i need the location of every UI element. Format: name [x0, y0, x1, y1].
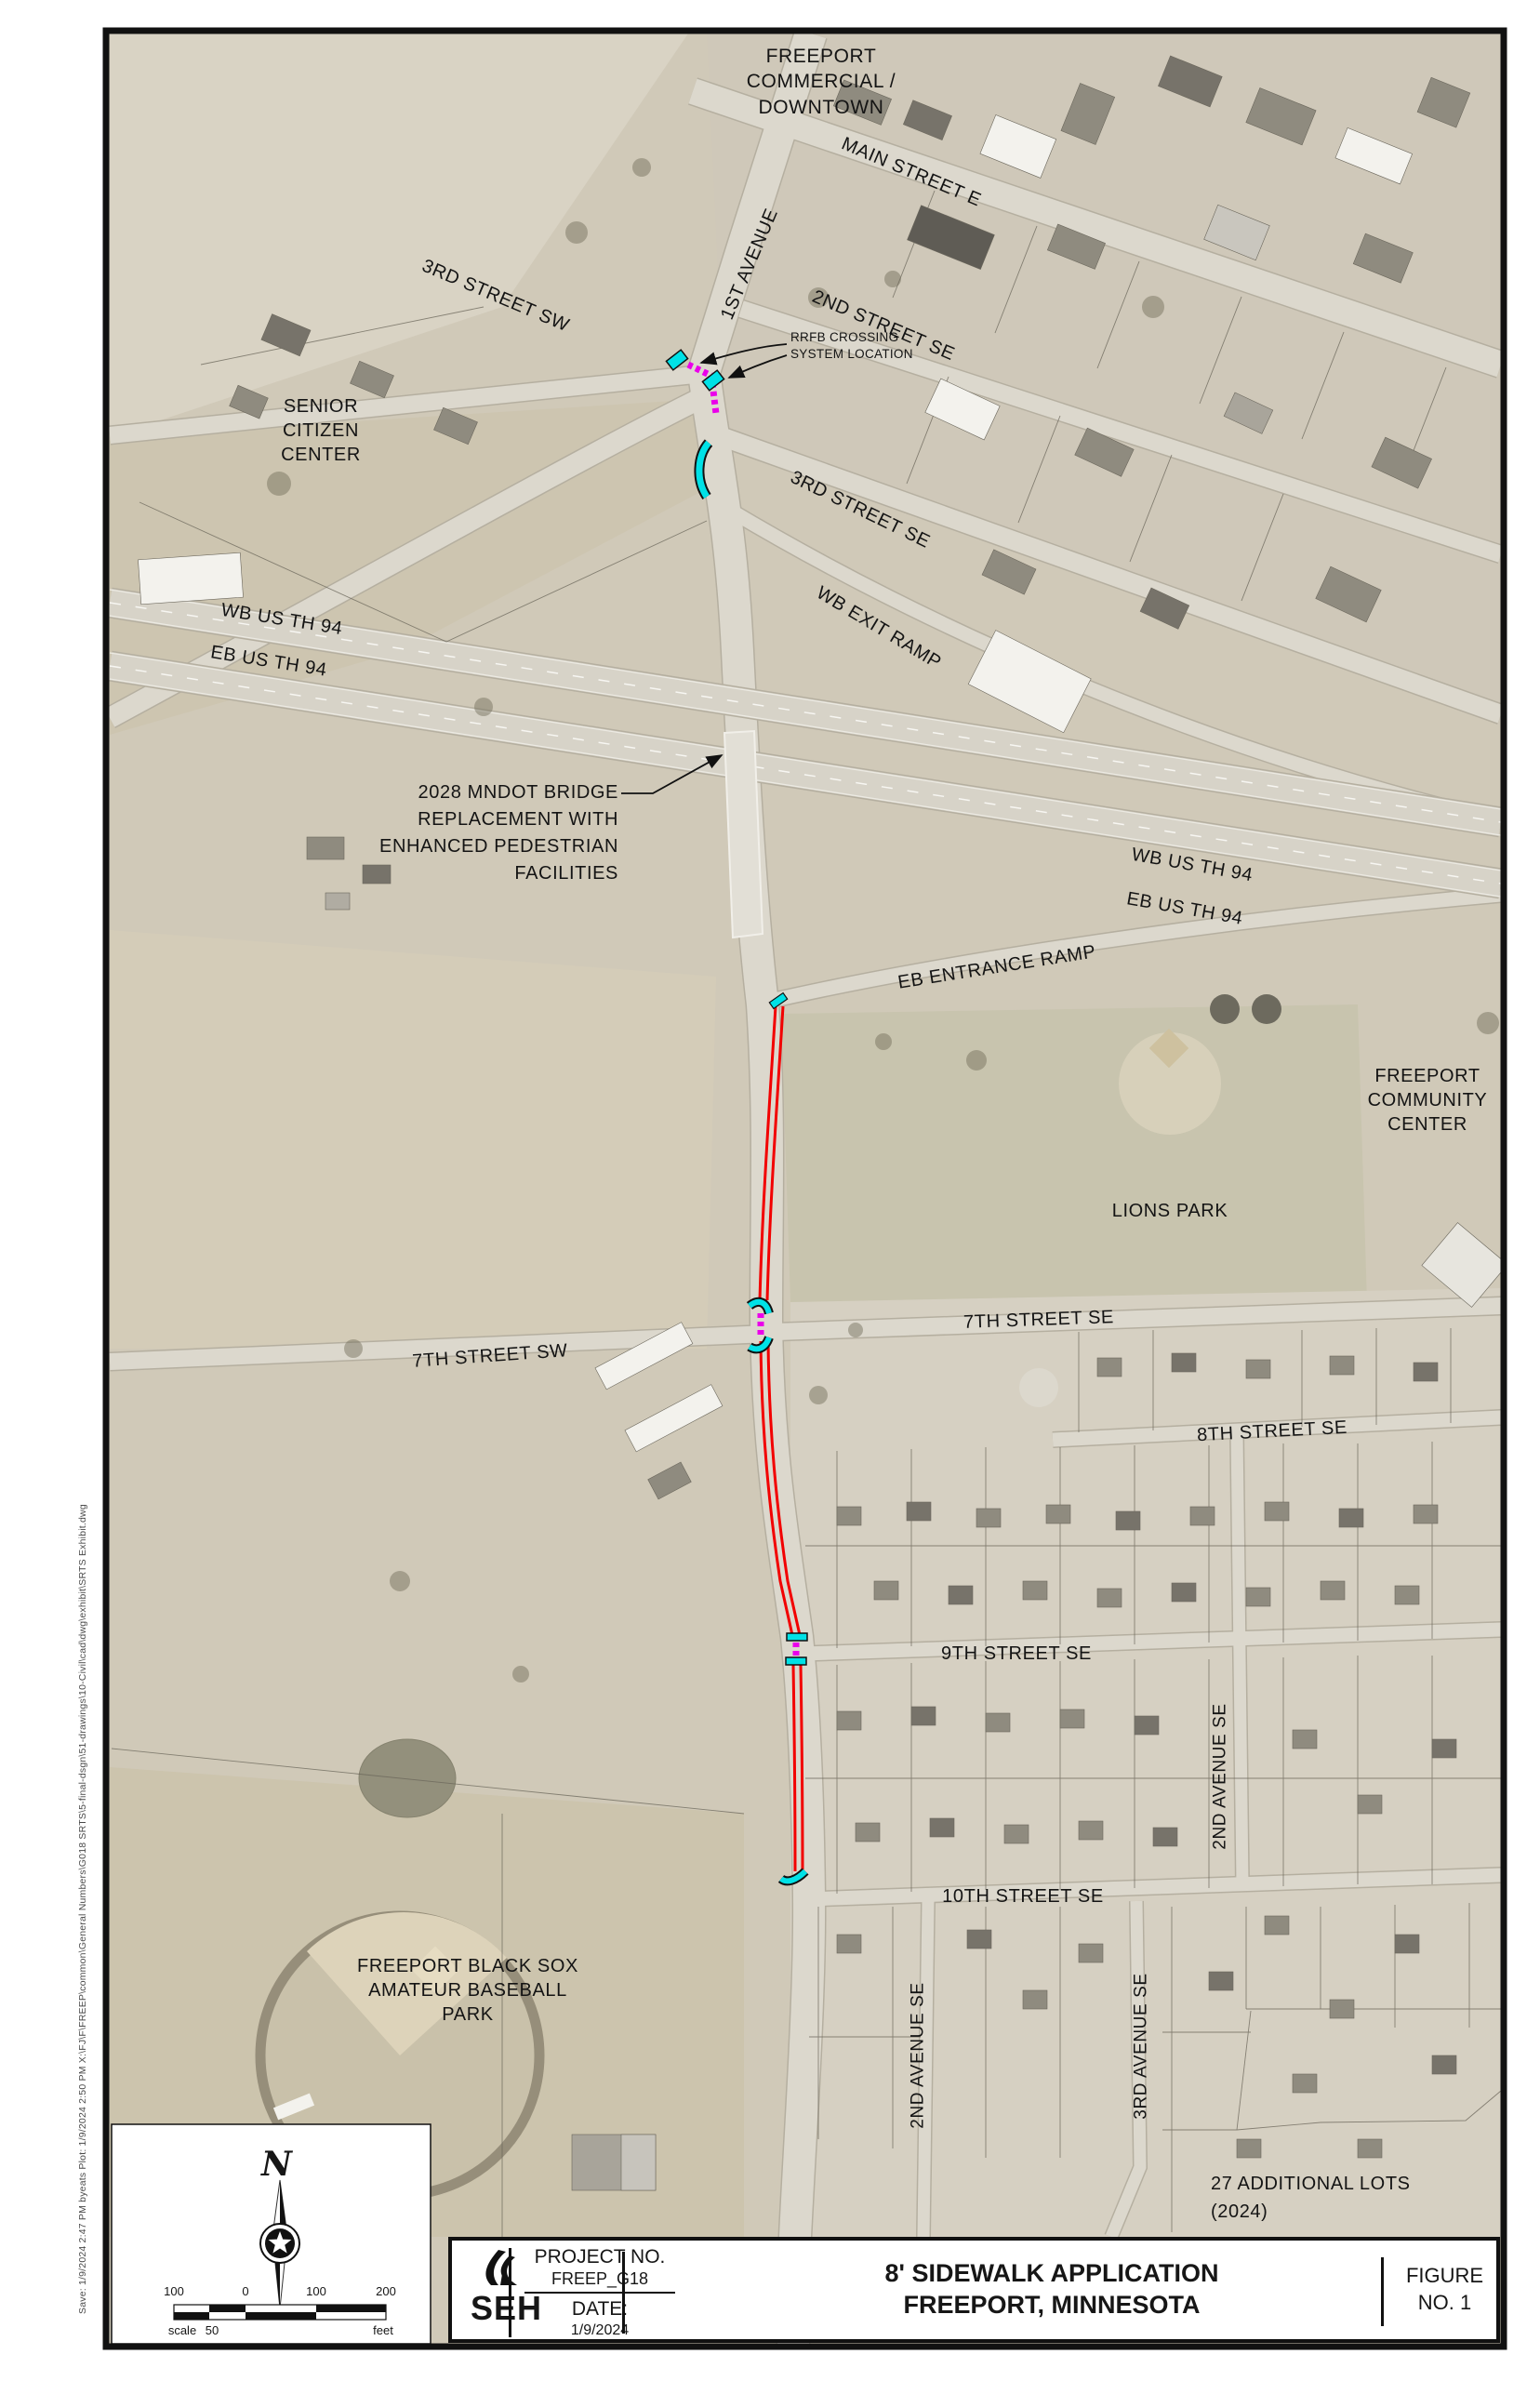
figure-box: FIGURE NO. 1 — [1391, 2241, 1498, 2339]
project-no-value: FREEP_G18 — [530, 2269, 670, 2289]
scale-unit: feet — [373, 2323, 393, 2337]
scale-tick-0: 0 — [242, 2284, 248, 2298]
sheet-title-line1: 8' SIDEWALK APPLICATION — [731, 2258, 1373, 2290]
scale-fifty: 50 — [206, 2323, 219, 2337]
title-block: SEH PROJECT NO. FREEP_G18 DATE: 1/9/2024… — [448, 2237, 1500, 2343]
sheet-title-line2: FREEPORT, MINNESOTA — [731, 2290, 1373, 2321]
scale-tick-200: 200 — [376, 2284, 396, 2298]
project-no-label: PROJECT NO. — [530, 2246, 670, 2268]
sheet-title: 8' SIDEWALK APPLICATION FREEPORT, MINNES… — [731, 2241, 1373, 2339]
figure-no: NO. 1 — [1391, 2290, 1498, 2317]
figure-label: FIGURE — [1391, 2263, 1498, 2290]
date-label: DATE: — [530, 2298, 670, 2321]
scale-bar — [174, 2305, 386, 2320]
scale-tick-100-left: 100 — [164, 2284, 184, 2298]
pond — [359, 1739, 456, 1817]
scale-word: scale — [168, 2323, 196, 2337]
aerial-map-canvas — [0, 0, 1540, 2381]
plot-stamp: Save: 1/9/2024 2:47 PM byeats Plot: 1/9/… — [77, 1504, 88, 2314]
scale-tick-100-right: 100 — [306, 2284, 326, 2298]
date-value: 1/9/2024 — [530, 2322, 670, 2339]
exhibit-sheet: { "map": { "area_labels": { "downtown": … — [0, 0, 1540, 2381]
north-letter: N — [261, 2145, 292, 2184]
map-area — [109, 33, 1507, 2347]
